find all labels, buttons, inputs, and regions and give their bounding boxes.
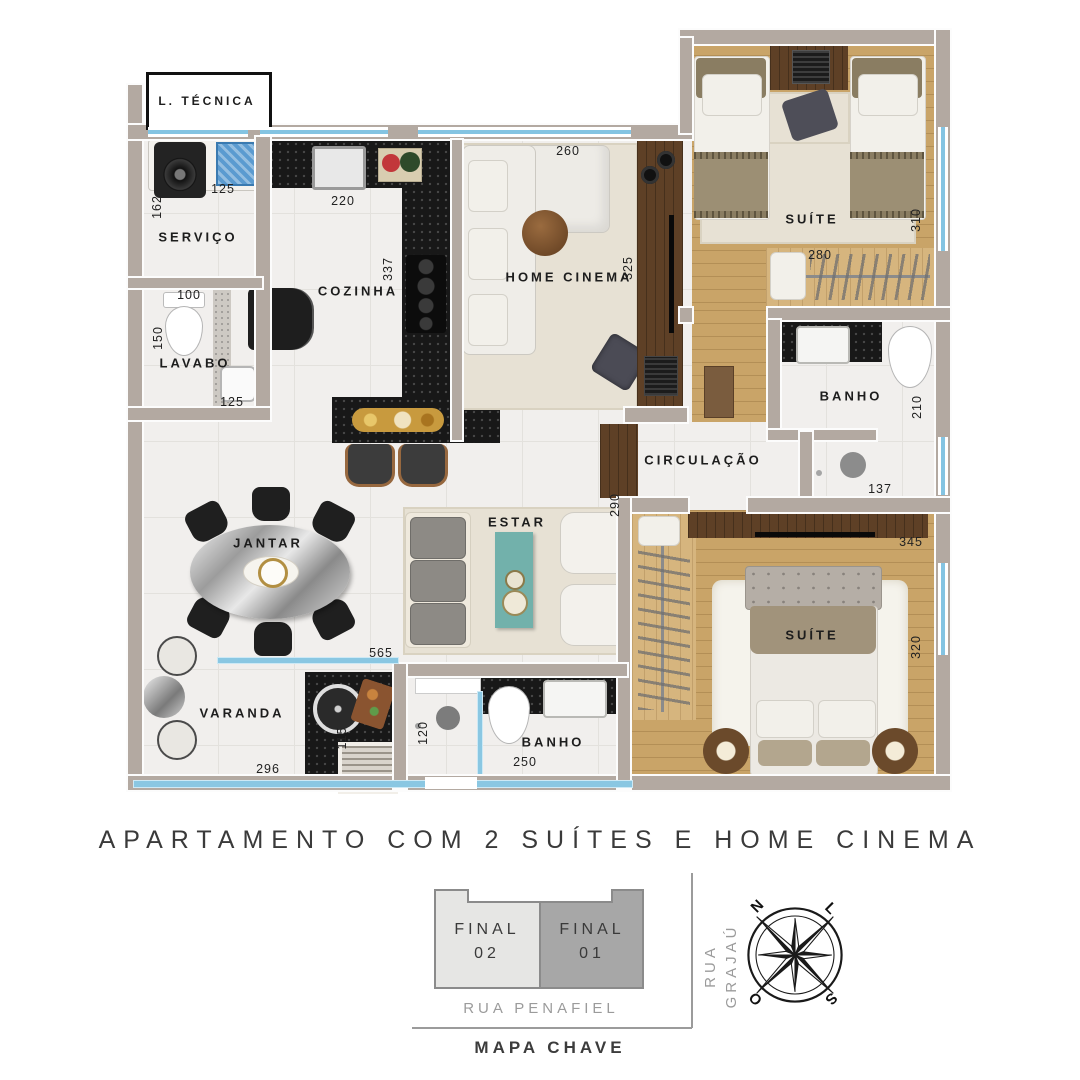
room-label-servico: SERVIÇO xyxy=(158,230,237,245)
bed1-pillow xyxy=(702,74,762,116)
room-label-cozinha: COZINHA xyxy=(318,284,398,299)
room-label-suite1: SUÍTE xyxy=(785,212,838,227)
varanda-table xyxy=(143,676,185,718)
wall xyxy=(680,308,692,322)
window-glass xyxy=(938,437,948,495)
sofa-cushion-2 xyxy=(468,228,508,280)
dining-chair-5 xyxy=(254,622,292,656)
dim-cozinha-top: 220 xyxy=(331,194,355,208)
compass-rose: N L O S xyxy=(730,890,860,1020)
banho1-sink xyxy=(796,326,850,364)
wall xyxy=(452,140,462,440)
dining-centerpiece-ring xyxy=(258,558,288,588)
room-label-estar: ESTAR xyxy=(488,515,546,530)
suite1-door xyxy=(704,366,734,418)
varanda-stool-1 xyxy=(157,636,197,676)
shower1-head xyxy=(840,452,866,478)
speaker-2 xyxy=(657,151,675,169)
tv-screen xyxy=(669,215,674,333)
bar-stool-1 xyxy=(345,444,395,487)
dim-shower1-width: 137 xyxy=(868,482,892,496)
dim-lavabo-top: 100 xyxy=(177,288,201,302)
dining-chair-2 xyxy=(252,487,290,521)
suite2-pillow-3 xyxy=(758,740,812,766)
door-gap xyxy=(425,777,477,789)
dim-varanda-bottom: 296 xyxy=(256,762,280,776)
key-map-units xyxy=(390,860,710,1060)
room-label-suite2: SUÍTE xyxy=(785,628,838,643)
banho2-shelf xyxy=(415,678,481,694)
suite2-headboard xyxy=(745,566,882,610)
suite2-nightstand-2 xyxy=(872,728,918,774)
estar-cushion-3 xyxy=(410,603,466,645)
window-glass xyxy=(148,127,248,137)
key-map: FINAL 02 FINAL 01 RUA GRAJAÚ RUA PENAFIE… xyxy=(390,860,710,1060)
bed2-pillow xyxy=(858,74,918,116)
wall xyxy=(768,430,876,440)
suite2-wardrobe-towel xyxy=(638,516,680,546)
coffee-table-round xyxy=(522,210,568,256)
plate-red xyxy=(382,154,400,172)
room-label-banho2: BANHO xyxy=(522,735,585,750)
dim-lavabo-bottom: 125 xyxy=(220,395,244,409)
key-map-caption: MAPA CHAVE xyxy=(390,1038,710,1058)
dim-banho2-left: 120 xyxy=(416,721,430,745)
key-map-unit-02-label: FINAL 02 xyxy=(454,918,519,966)
fruit-platter xyxy=(352,408,444,432)
suite2-nightstand-1 xyxy=(703,728,749,774)
window-glass xyxy=(938,563,948,655)
suite2-pillow-2 xyxy=(818,700,876,738)
dim-cozinha-side: 337 xyxy=(381,257,395,281)
dim-suite1-width: 280 xyxy=(808,248,832,262)
sofa-cushion-1 xyxy=(468,160,508,212)
key-map-unit-01-label: FINAL 01 xyxy=(559,918,624,966)
dim-banho1-side: 210 xyxy=(910,395,924,419)
estar-tray-1 xyxy=(505,570,525,590)
wall xyxy=(618,498,630,788)
dim-servico-tanque: 125 xyxy=(211,182,235,196)
dim-home-cinema-top: 260 xyxy=(556,144,580,158)
suite2-pillow-1 xyxy=(756,700,814,738)
estar-cushion-2 xyxy=(410,560,466,602)
entry-door xyxy=(600,424,638,498)
estar-tray-2 xyxy=(502,590,528,616)
wall xyxy=(394,664,627,676)
suite1-laptop xyxy=(792,50,830,84)
dim-lavabo-left: 150 xyxy=(151,326,165,350)
varanda-railing-glass xyxy=(134,781,632,787)
wall xyxy=(936,310,950,788)
wall xyxy=(625,408,687,422)
cooktop xyxy=(406,255,446,333)
plate-green xyxy=(400,152,420,172)
room-label-jantar: JANTAR xyxy=(233,536,303,551)
varanda-stool-2 xyxy=(157,720,197,760)
wall xyxy=(800,432,812,504)
wall xyxy=(748,498,950,512)
wall xyxy=(680,30,950,44)
dim-suite2-top: 345 xyxy=(899,535,923,549)
floor-plan-page: L. TÉCNICA SERVIÇO COZINHA LAVABO HOME C… xyxy=(0,0,1080,1080)
suite2-pillow-4 xyxy=(816,740,870,766)
window-glass xyxy=(418,127,631,137)
bar-stool-2 xyxy=(398,444,448,487)
wall xyxy=(128,408,270,420)
dim-estar-side: 290 xyxy=(608,493,622,517)
dim-suite1-side: 310 xyxy=(909,208,923,232)
room-label-banho1: BANHO xyxy=(820,389,883,404)
wall xyxy=(680,38,692,133)
estar-cushion-1 xyxy=(410,517,466,559)
window-glass xyxy=(938,127,948,251)
wall xyxy=(128,85,142,788)
dim-varanda-counter: 115 xyxy=(335,727,349,750)
dim-servico-left: 162 xyxy=(150,195,164,219)
sofa-cushion-3 xyxy=(468,294,508,346)
dim-home-cinema-side: 325 xyxy=(621,256,635,280)
dim-estar-bottom: 565 xyxy=(369,646,393,660)
room-label-l-tecnica: L. TÉCNICA xyxy=(158,94,255,108)
banho2-sink xyxy=(543,680,607,718)
window-glass xyxy=(260,127,388,137)
suite1-closet-towel xyxy=(770,252,806,300)
floor-plan: L. TÉCNICA SERVIÇO COZINHA LAVABO HOME C… xyxy=(0,0,1080,820)
room-label-varanda: VARANDA xyxy=(199,706,284,721)
suite2-tv xyxy=(755,532,875,537)
wall xyxy=(768,308,950,320)
dim-banho2-bottom: 250 xyxy=(513,755,537,769)
speaker-1 xyxy=(641,166,659,184)
plan-title: APARTAMENTO COM 2 SUÍTES E HOME CINEMA xyxy=(0,826,1080,855)
dim-suite2-side: 320 xyxy=(909,635,923,659)
wall xyxy=(394,664,406,788)
bed1-blanket xyxy=(694,152,768,218)
wall xyxy=(768,320,780,432)
shower2-head xyxy=(436,706,460,730)
wall xyxy=(128,278,262,288)
laptop-cabinet xyxy=(644,356,678,396)
washing-machine xyxy=(154,142,206,198)
room-label-circulacao: CIRCULAÇÃO xyxy=(644,453,761,468)
room-label-home-cinema: HOME CINEMA xyxy=(506,270,633,285)
street-label-penafiel: RUA PENAFIEL xyxy=(390,1000,692,1017)
shower2-glass xyxy=(478,692,482,778)
room-label-lavabo: LAVABO xyxy=(160,356,231,371)
suite2-hangers xyxy=(638,550,690,710)
kitchen-sink xyxy=(312,146,366,190)
